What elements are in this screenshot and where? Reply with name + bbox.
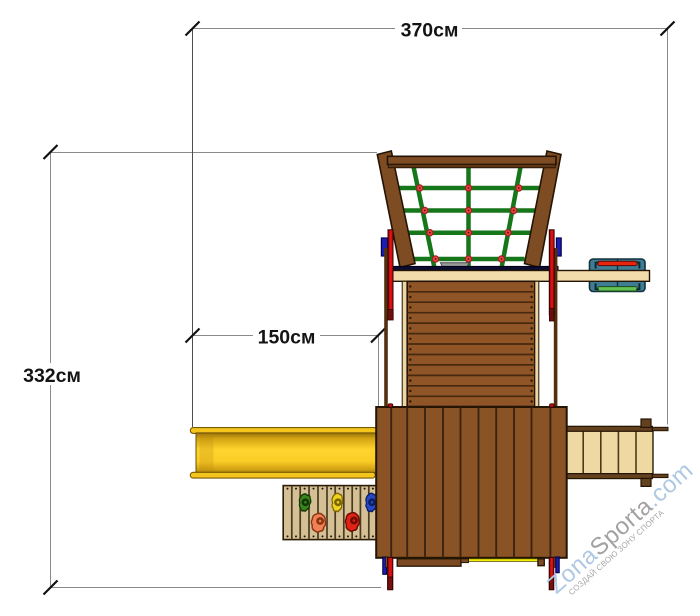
svg-text:332см: 332см — [23, 365, 81, 387]
svg-text:370см: 370см — [401, 20, 459, 42]
svg-text:150см: 150см — [258, 327, 316, 349]
